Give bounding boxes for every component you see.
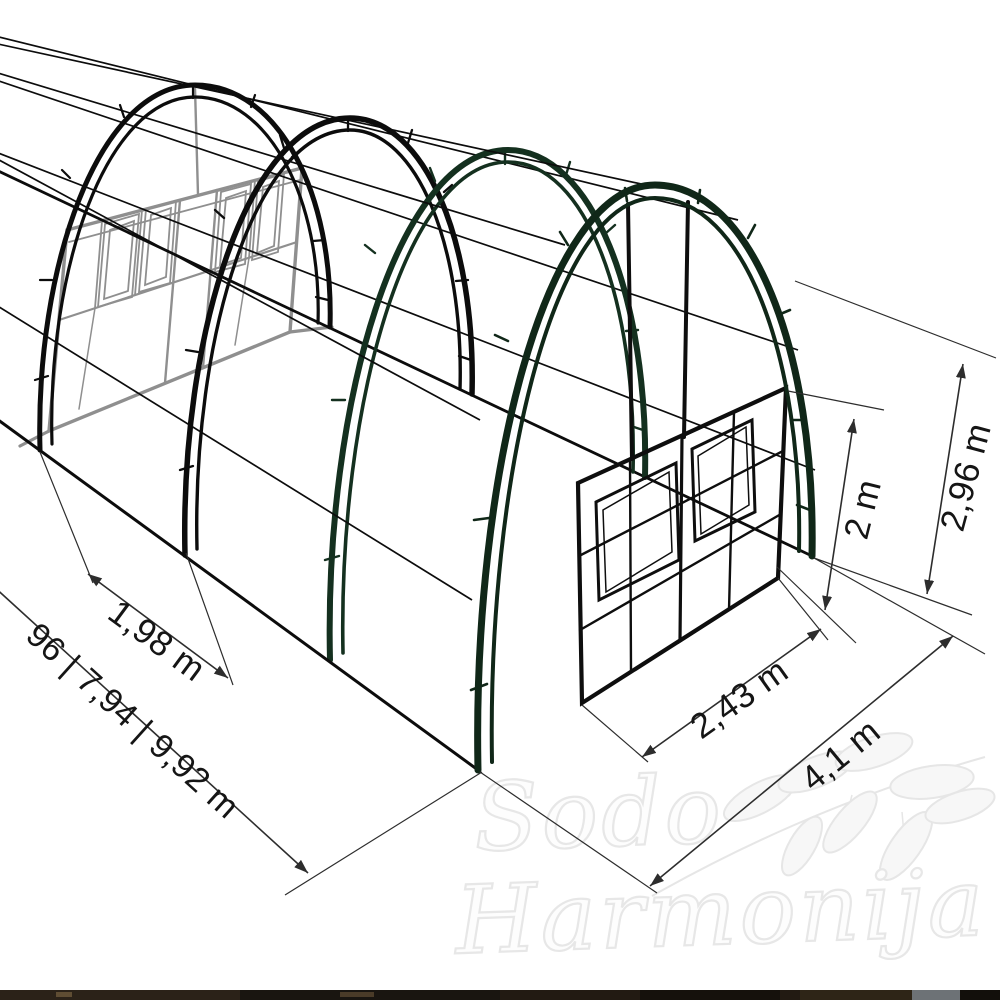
watermark: Sodo Harmonija xyxy=(451,725,998,976)
label-door-section-width: 2,43 m xyxy=(683,651,795,747)
dimension-length-options xyxy=(0,574,482,895)
rear-door-jambs xyxy=(165,190,217,383)
near-purlins xyxy=(0,39,655,770)
label-total-height: 2,96 m xyxy=(933,419,999,535)
label-arch-spacing: 1,98 m xyxy=(101,592,213,689)
photo-strip xyxy=(0,990,1000,1000)
greenhouse-dimension-drawing: Sodo Harmonija xyxy=(0,0,1000,1000)
label-length-options: 96 | 7,94 | 9,92 m xyxy=(19,616,247,827)
watermark-line2: Harmonija xyxy=(451,849,988,977)
arch-1 xyxy=(35,85,330,450)
diagram-canvas: Sodo Harmonija xyxy=(0,0,1000,1000)
rear-apex-post xyxy=(195,88,198,195)
